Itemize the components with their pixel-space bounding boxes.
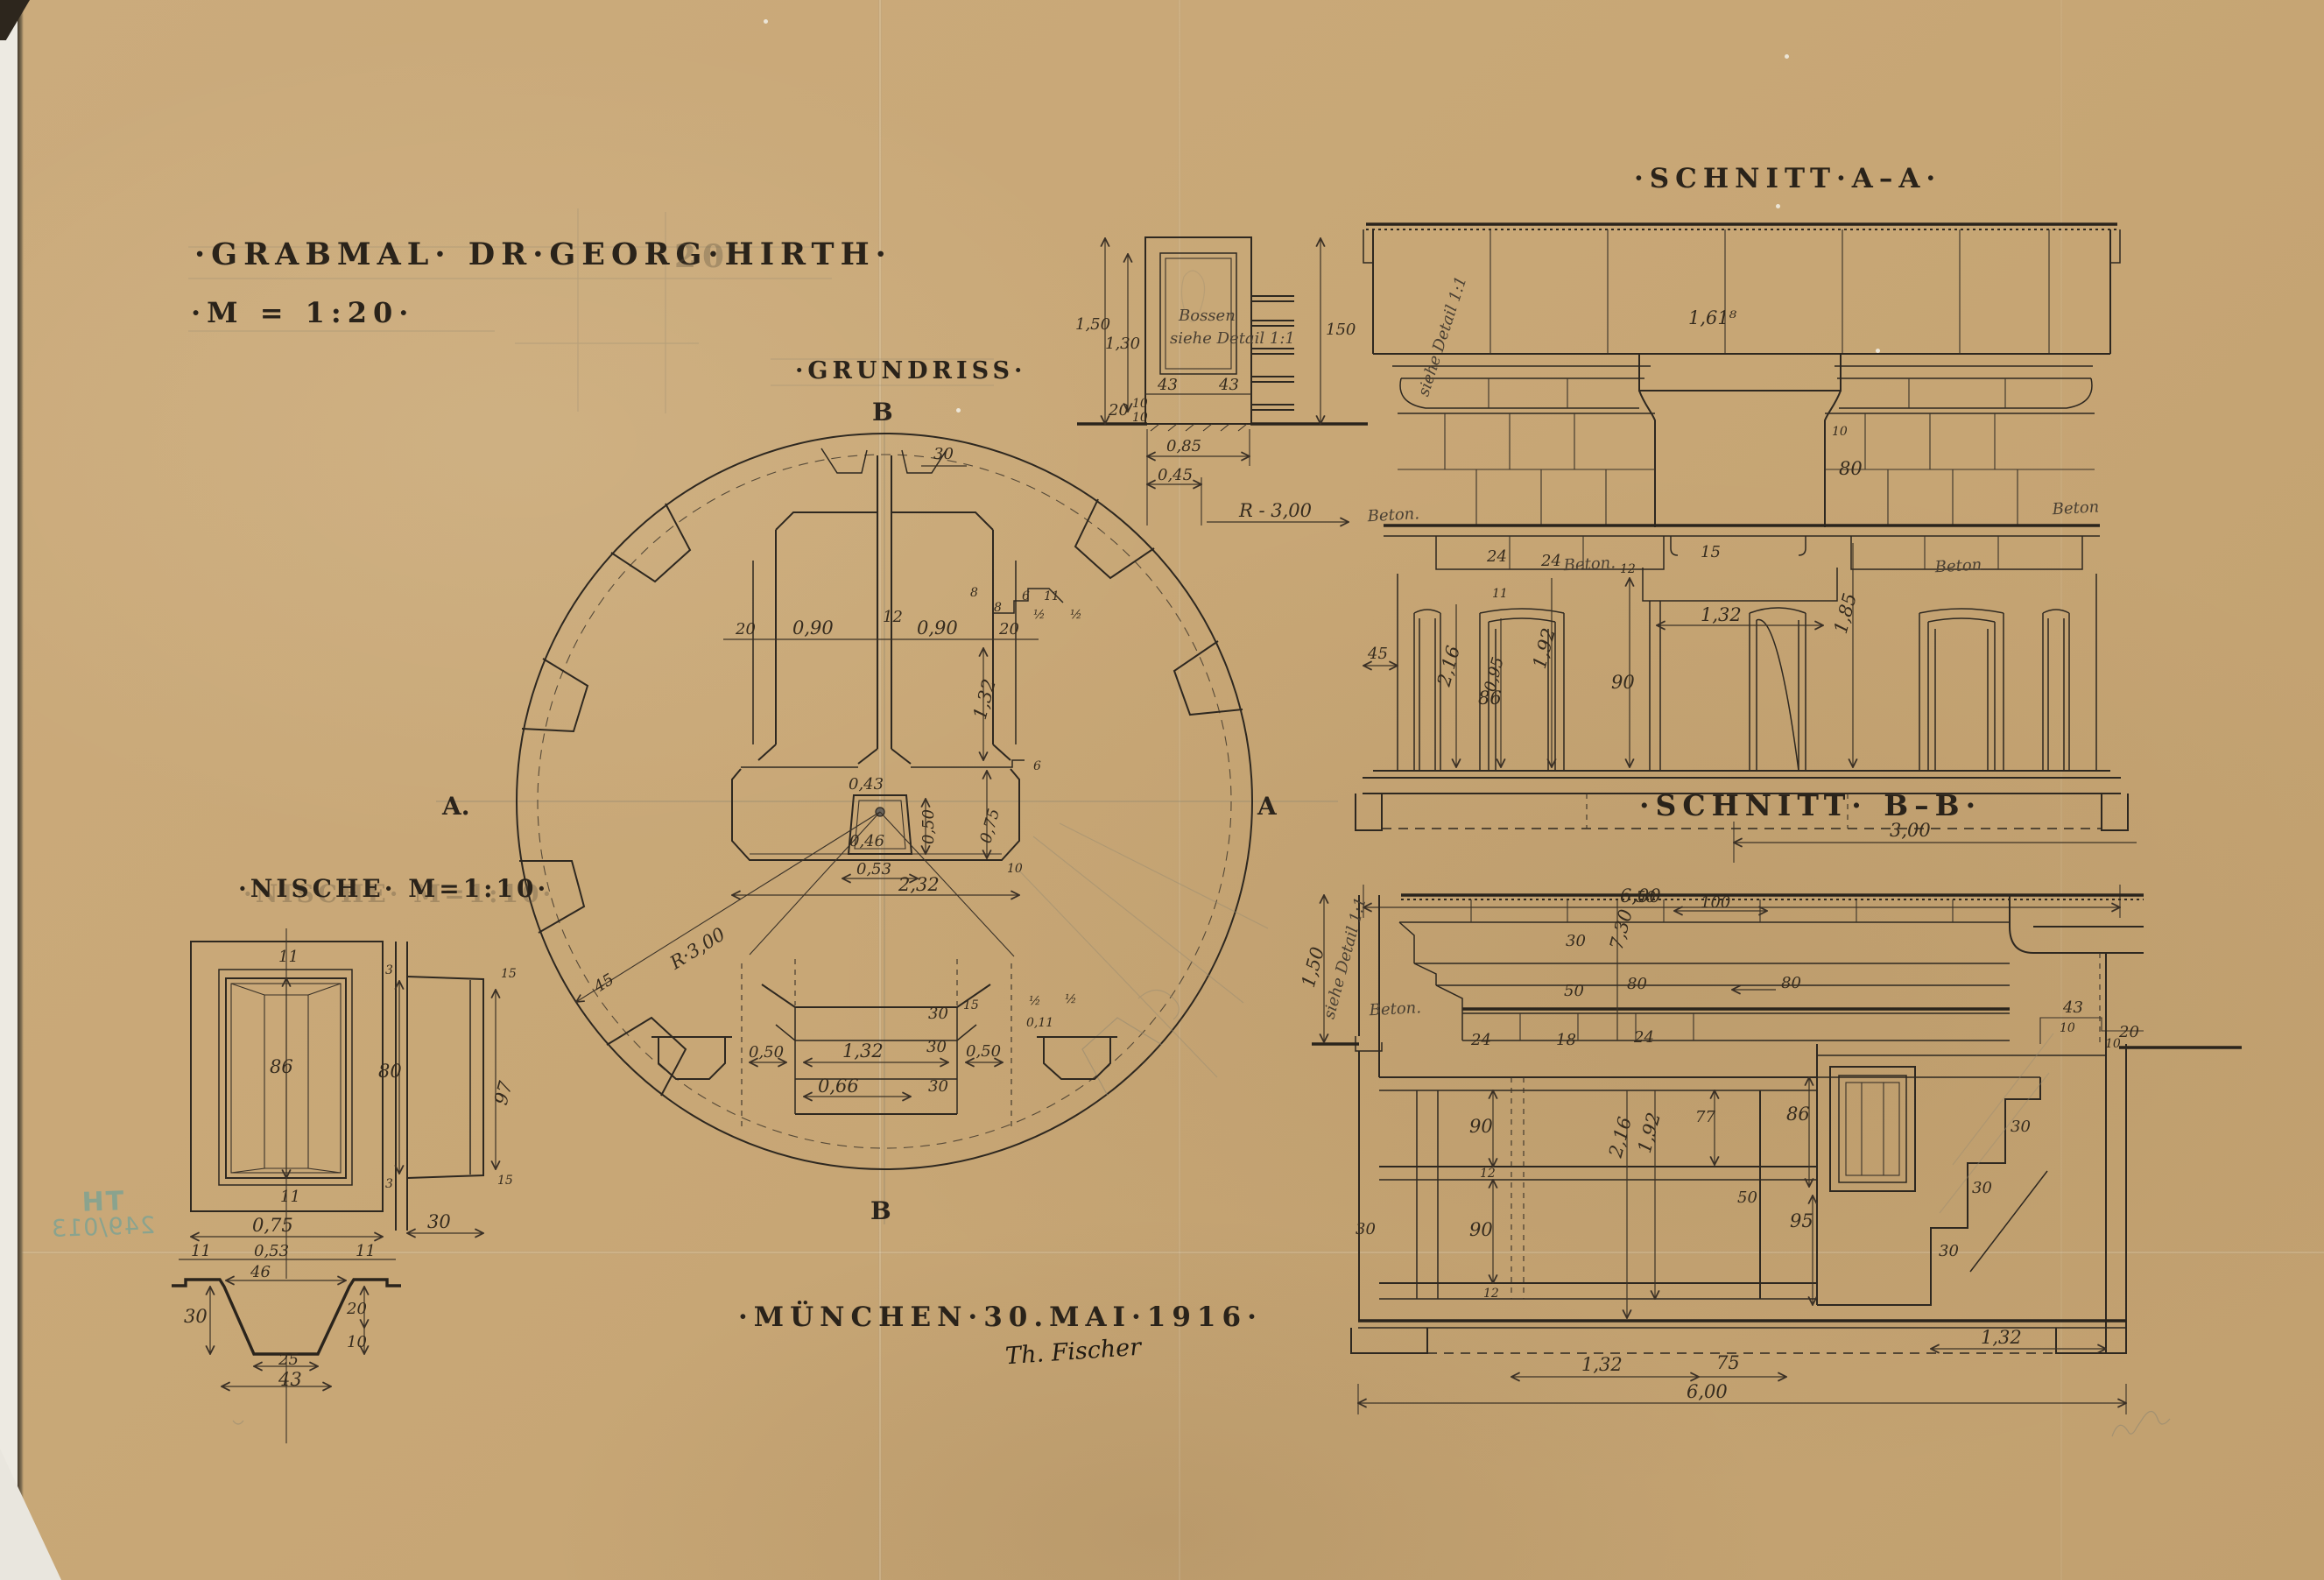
dim-label: 80 (1781, 974, 1801, 992)
dim-label: ½ (1065, 992, 1077, 1006)
dim-label: 43 (2062, 998, 2083, 1017)
dim-label: 80 (1839, 458, 1863, 479)
dim-label: ½ (1033, 608, 1046, 622)
dim-label: 24 (1540, 552, 1561, 570)
dim-label: ½ (1070, 608, 1082, 622)
dim-label: 24 (1486, 547, 1507, 566)
dim-label: 2,16 (1433, 644, 1464, 689)
schnitt-aa-title: ·SCHNITT·A–A· (1634, 163, 1941, 194)
pencil-note-squiggle (2112, 1411, 2170, 1436)
dim-label: 1,32 (1981, 1327, 2022, 1348)
dim-label: 30 (427, 1211, 451, 1232)
dim-label: 0,50 (919, 809, 938, 844)
dim-label: 1,50 (1075, 315, 1110, 334)
dim-label: 95 (1790, 1210, 1813, 1231)
dim-label: 6 (1022, 589, 1030, 603)
dim-label: 8 (970, 586, 978, 600)
dim-label: 11 (278, 948, 299, 966)
dim-label: 1,92 (1634, 1111, 1665, 1155)
dim-label: 43 (278, 1369, 302, 1390)
schnitt-bb-title: ·SCHNITT· B–B· (1639, 788, 1982, 822)
dim-label: 0,95 (1481, 655, 1508, 694)
dim-label: 1,30 (1105, 335, 1140, 353)
dim-label: 30 (1356, 1220, 1376, 1238)
dim-label: 1,32 (842, 1040, 884, 1062)
dim-label: 10 (1832, 425, 1848, 439)
dim-label: 46 (250, 1263, 271, 1281)
dim-label: 20 (346, 1300, 367, 1318)
dim-label: 12 (1480, 1167, 1496, 1181)
dim-label: 11 (280, 1188, 300, 1206)
dim-label: 100 (1701, 893, 1730, 912)
dim-label: 0,53 (254, 1242, 289, 1260)
dim-label: 1,61⁸ (1688, 307, 1737, 328)
dim-label: 0,11 (1026, 1016, 1053, 1030)
dim-label: 30 (184, 1306, 208, 1327)
dim-label: R - 3,00 (1238, 500, 1312, 521)
dim-label: 77 (1695, 1108, 1715, 1126)
section-marker-b-bottom: B (870, 1196, 891, 1225)
handwritten-note: Bossen (1178, 307, 1236, 325)
dim-label: 90 (1469, 1219, 1493, 1240)
dim-label: 11 (1044, 589, 1060, 603)
detail-note: siehe Detail 1:1 (1414, 274, 1470, 399)
dim-label: 30 (1566, 932, 1586, 950)
dim-label: 43 (1218, 376, 1239, 394)
scan-edge-left (0, 0, 18, 1580)
dim-label: 15 (1701, 543, 1721, 561)
dim-label: 50 (1564, 982, 1584, 1000)
dim-label: 0,53 (856, 860, 891, 878)
detail-note: siehe Detail 1:1 (1320, 895, 1370, 1020)
dim-label: 45 (1367, 645, 1388, 663)
drawing-title: ·GRABMAL· DR·GEORG·HIRTH· (194, 236, 892, 272)
dim-label: 0,85 (1166, 437, 1201, 455)
dim-label: 30 (1972, 1179, 1992, 1197)
dim-label: 30 (928, 1077, 948, 1096)
dim-label: 3,00 (1890, 820, 1931, 841)
dim-label: 1,85 (1830, 591, 1861, 636)
dim-label: 15 (497, 1174, 513, 1188)
schnitt-bb-drawing: 3,00 1,50 7,30 50 100 30 50 80 80 24 18 … (1298, 820, 2242, 1414)
archive-stamp: TH 249/013 (45, 1188, 160, 1242)
dim-label: R·3,00 (666, 923, 729, 974)
pencil-ghost-note: 20 (674, 238, 730, 275)
dim-label: 30 (933, 445, 954, 463)
dim-label: 0,46 (849, 832, 884, 850)
dim-label: 0,43 (849, 775, 884, 794)
dim-label: 150 (1326, 321, 1356, 339)
dim-label: 30 (926, 1038, 947, 1056)
dim-label: 12 (1483, 1287, 1499, 1301)
dim-label: 15 (501, 967, 517, 981)
dim-label: 0,66 (818, 1076, 859, 1097)
beton-label: Beton (2051, 497, 2100, 518)
beton-label: Beton (1933, 555, 1982, 576)
nische-drawing: 11 86 11 3 80 3 97 15 15 30 0,75 11 0,53… (172, 928, 517, 1443)
beton-label: Beton. (1366, 504, 1419, 525)
dim-label: 20 (2118, 1023, 2139, 1041)
dim-label: 10 (2060, 1021, 2075, 1035)
dim-label: 90 (1469, 1116, 1493, 1137)
dim-label: 0,90 (792, 617, 834, 638)
paper-edge-shadow (18, 0, 24, 1580)
dim-label: 10 (1132, 411, 1148, 425)
dim-label: 3 (385, 1177, 393, 1191)
dim-label: 75 (1716, 1352, 1740, 1373)
pillar-detail-drawing: Bossen siehe Detail 1:1 1,50 1,30 150 43… (1075, 237, 1368, 525)
dim-label: 0,50 (966, 1042, 1001, 1061)
dim-label: 7,30 (1606, 907, 1637, 952)
grundriss-drawing: 30 20 0,90 12 0,90 20 8 8 6 11 ½ ½ 1,32 … (436, 398, 1338, 1225)
handwritten-note: siehe Detail 1:1 (1170, 329, 1295, 348)
grundriss-title: ·GRUNDRISS· (795, 357, 1026, 384)
dim-label: 30 (2011, 1118, 2031, 1136)
dim-label: 15 (963, 998, 979, 1012)
drawing-scale: ·M = 1:20· (191, 296, 414, 329)
beton-label: Beton. (1562, 554, 1616, 575)
place-date: ·MÜNCHEN·30.MAI·1916· (738, 1301, 1263, 1333)
section-marker-a-right: A (1257, 792, 1278, 821)
dim-label: 10 (2105, 1037, 2121, 1051)
dim-label: 45 (590, 970, 617, 997)
dim-label: 90 (1611, 672, 1635, 693)
dim-label: 50 (1737, 1189, 1757, 1207)
section-marker-a-left: A. (441, 792, 469, 821)
drawing-sheet: 30 20 0,90 12 0,90 20 8 8 6 11 ½ ½ 1,32 … (0, 0, 2324, 1580)
dim-label: 6,00 (1687, 1381, 1728, 1402)
dim-label: 11 (191, 1242, 211, 1260)
section-marker-b-top: B (872, 398, 893, 427)
dim-label: 50 (1636, 888, 1656, 906)
dim-label: ½ (1029, 994, 1041, 1008)
dim-label: 97 (490, 1078, 517, 1107)
dim-label: 8 (994, 601, 1002, 615)
dim-label: 20 (998, 620, 1019, 638)
dim-label: 12 (1620, 562, 1636, 576)
stamp-line2: 249/013 (46, 1214, 160, 1242)
dim-label: 6 (1033, 759, 1041, 773)
dim-label: 10 (1132, 397, 1148, 411)
dim-label: 3 (385, 963, 393, 977)
dim-label: 1,32 (1701, 604, 1742, 625)
dim-label: 43 (1157, 376, 1178, 394)
dim-label: 0,75 (976, 807, 1004, 845)
dim-label: 86 (1786, 1104, 1810, 1125)
dim-label: 24 (1470, 1031, 1491, 1049)
dim-label: 10 (1007, 862, 1023, 876)
dim-label: 10 (347, 1333, 367, 1351)
dim-label: 0,75 (252, 1215, 293, 1236)
dim-label: 20 (735, 620, 756, 638)
dim-label: 86 (270, 1056, 293, 1077)
dim-label: 18 (1556, 1031, 1576, 1049)
dim-label: 1,32 (969, 677, 1000, 722)
nische-title: ·NISCHE· M=1:10· (238, 874, 549, 903)
dim-label: 1,32 (1581, 1354, 1623, 1375)
dim-label: 30 (1939, 1242, 1959, 1260)
dim-label: 80 (1627, 975, 1647, 993)
dim-label: 12 (883, 608, 903, 626)
dim-label: 0,50 (749, 1043, 784, 1062)
dim-label: 2,32 (898, 874, 940, 895)
pencil-construction-lines (1016, 823, 1268, 1077)
dim-label: 25 (278, 1351, 299, 1369)
beton-label: Beton. (1368, 998, 1421, 1019)
dim-label: 0,45 (1158, 466, 1193, 484)
dim-label: 11 (1492, 587, 1508, 601)
dim-label: 2,16 (1604, 1115, 1636, 1160)
dim-label: 24 (1633, 1028, 1654, 1047)
dim-label: 30 (928, 1005, 948, 1023)
dim-label: 80 (378, 1061, 402, 1082)
dim-label: 20 (1108, 401, 1129, 420)
dim-label: 11 (356, 1242, 376, 1260)
dim-label: 0,90 (917, 617, 958, 638)
